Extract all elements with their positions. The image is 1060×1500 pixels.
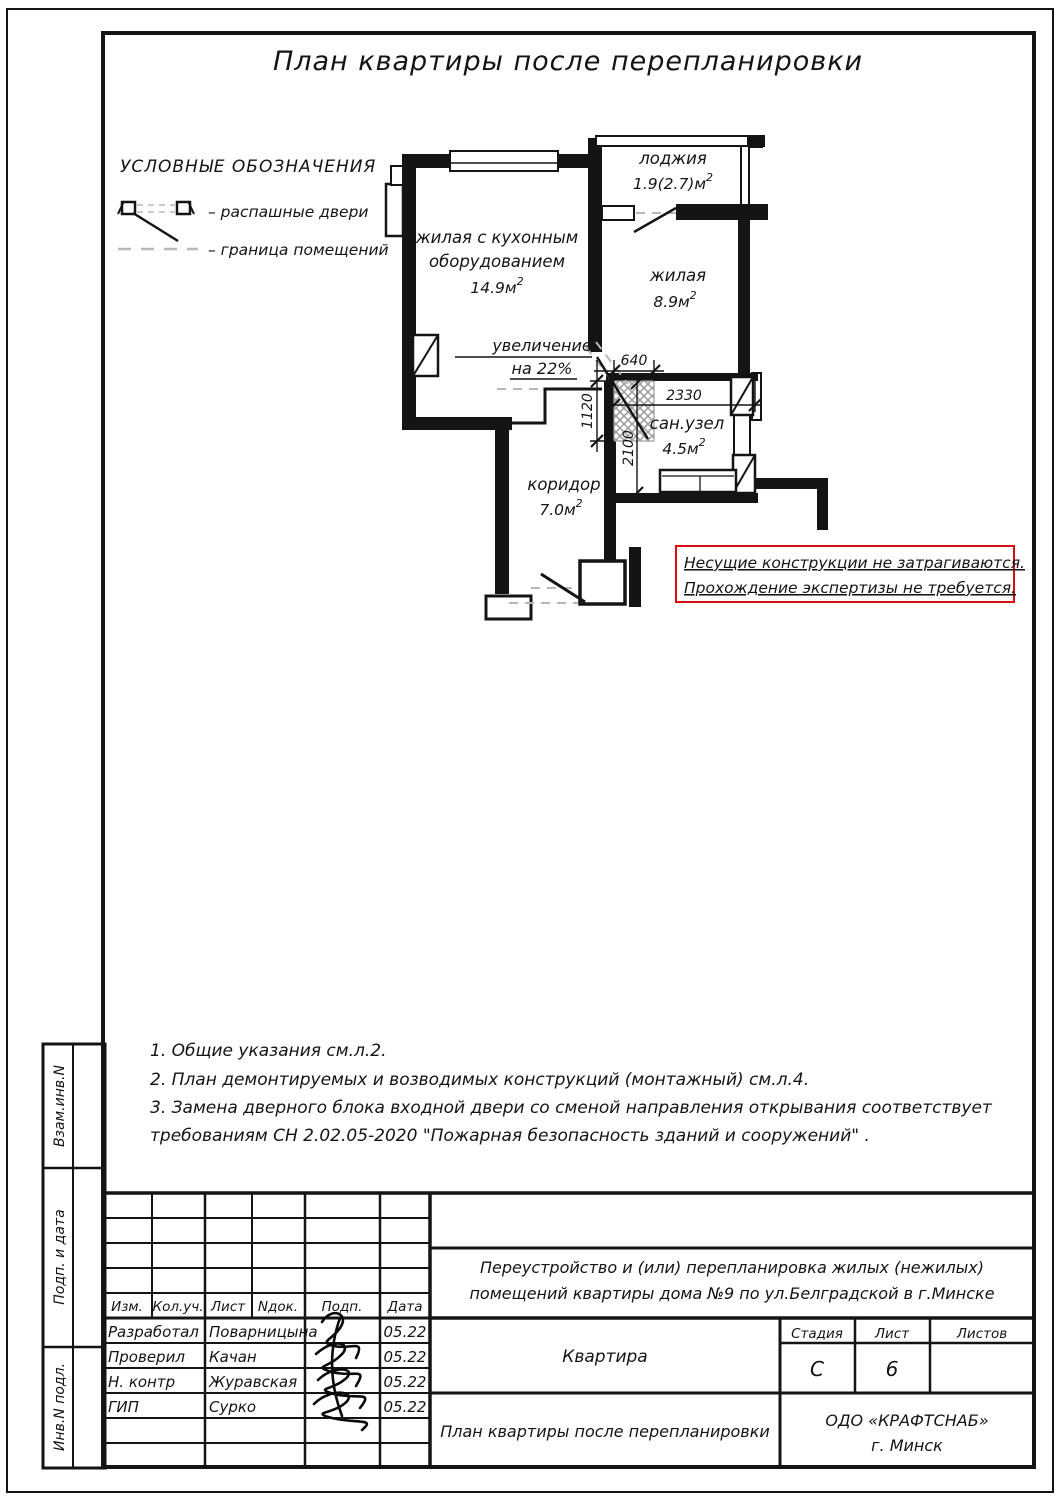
warning-box: Несущие конструкции не затрагиваются. Пр… [676, 546, 1025, 602]
row-date: 05.22 [384, 1348, 427, 1366]
row-date: 05.22 [384, 1323, 427, 1341]
legend-boundary-label: – граница помещений [208, 241, 389, 259]
note-3-cont: требованиям СН 2.02.05-2020 "Пожарная бе… [150, 1126, 870, 1146]
company-city: г. Минск [871, 1436, 943, 1455]
sheet-heading: План квартиры после перепланировки [273, 46, 863, 77]
dim-2100: 2100 [621, 430, 637, 466]
room-living-name: жилая [649, 266, 706, 285]
room-living-area: 8.9м2 [653, 289, 696, 311]
project-name-line1: Переустройство и (или) перепланировка жи… [480, 1258, 984, 1277]
stamp-rows: Разработал Поварницына 05.22 Проверил Ка… [108, 1323, 426, 1416]
row-role: Н. контр [108, 1373, 175, 1391]
row-date: 05.22 [384, 1398, 427, 1416]
dim-640: 640 [621, 353, 648, 369]
row-role: ГИП [108, 1398, 139, 1416]
row-name: Поварницына [209, 1323, 318, 1341]
side-podp-label: Подп. и дата [52, 1209, 68, 1304]
dim-2330: 2330 [666, 388, 702, 404]
drawing-sheet: План квартиры после перепланировки УСЛОВ… [0, 0, 1060, 1500]
room-corridor-name: коридор [527, 475, 600, 494]
room-kitchen-living-name2: оборудованием [429, 252, 565, 271]
sheet-value: 6 [886, 1357, 899, 1381]
col-data: Дата [387, 1299, 423, 1315]
sheet-label: Лист [874, 1326, 910, 1342]
col-koluch: Кол.уч. [152, 1299, 203, 1315]
note-2: 2. План демонтируемых и возводимых конст… [150, 1070, 809, 1090]
room-bathroom-name: сан.узел [650, 414, 725, 433]
note-1: 1. Общие указания см.л.2. [150, 1041, 386, 1061]
door-symbol-icon [118, 201, 194, 241]
signatures [314, 1313, 367, 1430]
side-inv-label: Инв.N подл. [52, 1363, 68, 1451]
room-loggia-name: лоджия [638, 149, 707, 168]
object-name: Квартира [562, 1347, 647, 1367]
sheet-canvas: План квартиры после перепланировки УСЛОВ… [0, 0, 1060, 1500]
company-name: ОДО «КРАФТСНАБ» [825, 1411, 988, 1430]
increase-note-line2: на 22% [512, 359, 573, 378]
row-name: Сурко [209, 1398, 256, 1416]
increase-note-line1: увеличение [491, 336, 592, 355]
row-role: Разработал [108, 1323, 199, 1341]
warning-line2: Прохождение экспертизы не требуется. [684, 579, 1016, 597]
room-bathroom-area: 4.5м2 [662, 436, 705, 458]
row-name: Качан [209, 1348, 257, 1366]
notes-block: 1. Общие указания см.л.2. 2. План демонт… [150, 1041, 993, 1146]
side-vzam-label: Взам.инв.N [52, 1064, 68, 1147]
col-izm: Изм. [111, 1299, 143, 1315]
col-ndok: Nдок. [258, 1299, 298, 1315]
room-corridor-area: 7.0м2 [539, 497, 582, 519]
warning-line1: Несущие конструкции не затрагиваются. [684, 554, 1025, 572]
col-list: Лист [210, 1299, 246, 1315]
col-podp: Подп. [322, 1299, 363, 1315]
row-name: Журавская [208, 1373, 297, 1391]
sheet-title: План квартиры после перепланировки [440, 1422, 770, 1441]
sheets-label: Листов [956, 1326, 1007, 1342]
row-date: 05.22 [384, 1373, 427, 1391]
row-role: Проверил [108, 1348, 185, 1366]
legend-doors-label: – распашные двери [208, 203, 369, 221]
room-kitchen-living-name1: жилая с кухонным [415, 228, 578, 247]
legend-heading: УСЛОВНЫЕ ОБОЗНАЧЕНИЯ [120, 157, 376, 177]
stage-label: Стадия [791, 1326, 843, 1342]
room-loggia-area: 1.9(2.7)м2 [633, 171, 713, 193]
room-kitchen-living-area: 14.9м2 [470, 275, 523, 297]
stage-value: С [810, 1357, 824, 1381]
project-name-line2: помещений квартиры дома №9 по ул.Белград… [469, 1284, 994, 1303]
dim-1120: 1120 [580, 393, 596, 429]
note-3: 3. Замена дверного блока входной двери с… [150, 1098, 993, 1118]
